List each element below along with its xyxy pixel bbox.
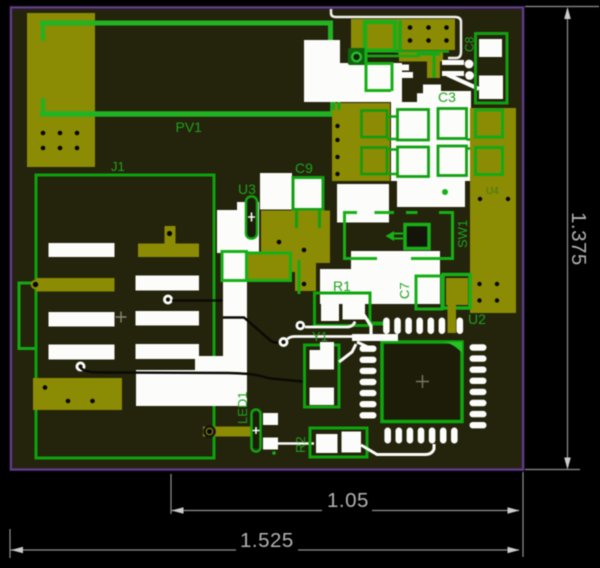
svg-text:C3: C3: [438, 89, 456, 105]
svg-text:SW1: SW1: [455, 220, 470, 248]
svg-text:C7: C7: [397, 282, 412, 299]
svg-text:R2: R2: [293, 436, 308, 453]
svg-text:Y1: Y1: [312, 329, 328, 344]
svg-text:J1: J1: [111, 159, 125, 174]
svg-text:1.525: 1.525: [240, 529, 294, 552]
svg-text:U2: U2: [468, 311, 486, 327]
svg-text:C9: C9: [295, 160, 313, 176]
svg-text:LED1: LED1: [235, 391, 250, 424]
svg-text:U3: U3: [238, 181, 256, 197]
svg-text:1.05: 1.05: [327, 489, 369, 512]
svg-text:1.375: 1.375: [567, 212, 590, 266]
svg-text:U4: U4: [486, 186, 499, 197]
svg-text:PV1: PV1: [176, 119, 203, 135]
